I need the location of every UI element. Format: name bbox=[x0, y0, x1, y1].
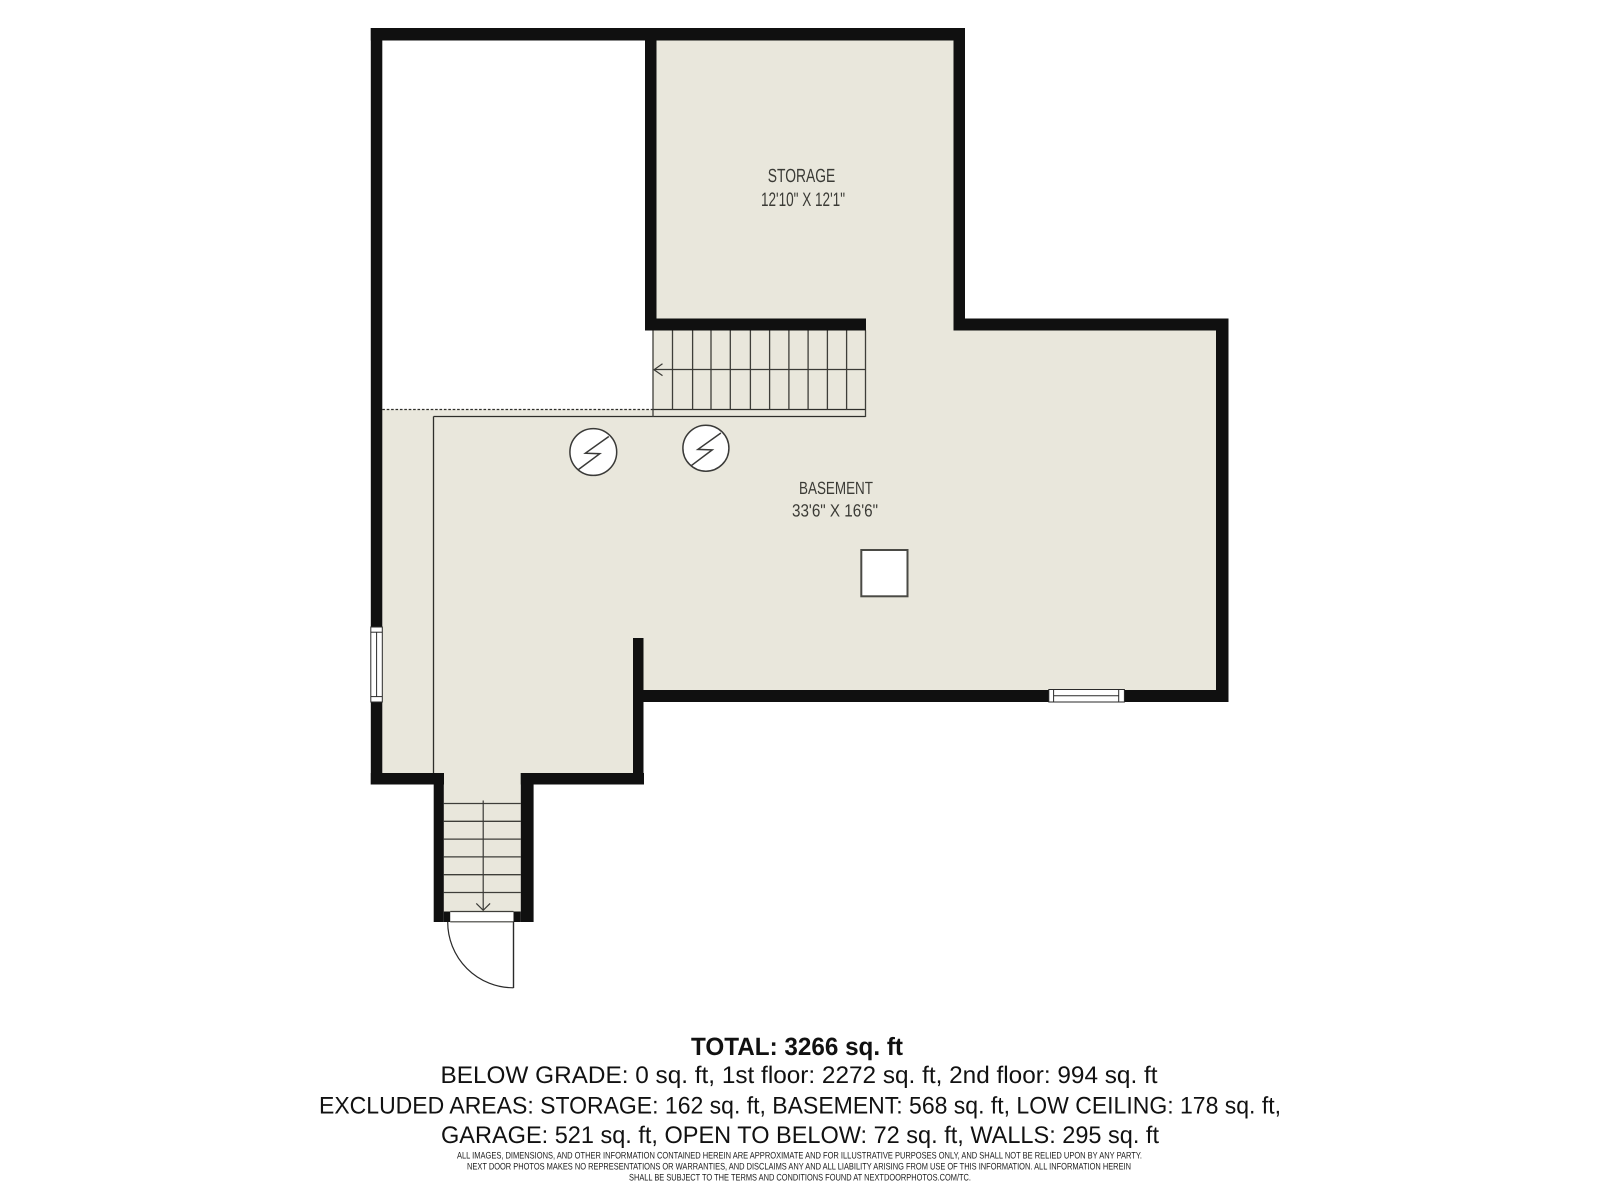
svg-text:TOTAL: 3266 sq. ft: TOTAL: 3266 sq. ft bbox=[691, 1033, 904, 1061]
svg-text:BELOW GRADE: 0 sq. ft, 1st flo: BELOW GRADE: 0 sq. ft, 1st floor: 2272 s… bbox=[441, 1062, 1158, 1089]
svg-text:GARAGE: 521 sq. ft, OPEN TO BE: GARAGE: 521 sq. ft, OPEN TO BELOW: 72 sq… bbox=[441, 1122, 1159, 1149]
svg-text:ALL IMAGES, DIMENSIONS, AND OT: ALL IMAGES, DIMENSIONS, AND OTHER INFORM… bbox=[457, 1151, 1142, 1162]
svg-text:NEXT DOOR PHOTOS MAKES NO REPR: NEXT DOOR PHOTOS MAKES NO REPRESENTATION… bbox=[467, 1162, 1131, 1173]
svg-text:STORAGE: STORAGE bbox=[768, 166, 836, 187]
svg-text:12'10" X 12'1": 12'10" X 12'1" bbox=[761, 189, 845, 211]
svg-text:EXCLUDED AREAS: STORAGE: 162 s: EXCLUDED AREAS: STORAGE: 162 sq. ft, BAS… bbox=[319, 1093, 1281, 1120]
svg-text:SHALL BE SUBJECT TO THE TERMS: SHALL BE SUBJECT TO THE TERMS AND CONDIT… bbox=[629, 1173, 971, 1184]
svg-text:BASEMENT: BASEMENT bbox=[799, 478, 873, 498]
svg-text:33'6" X 16'6": 33'6" X 16'6" bbox=[792, 501, 878, 521]
